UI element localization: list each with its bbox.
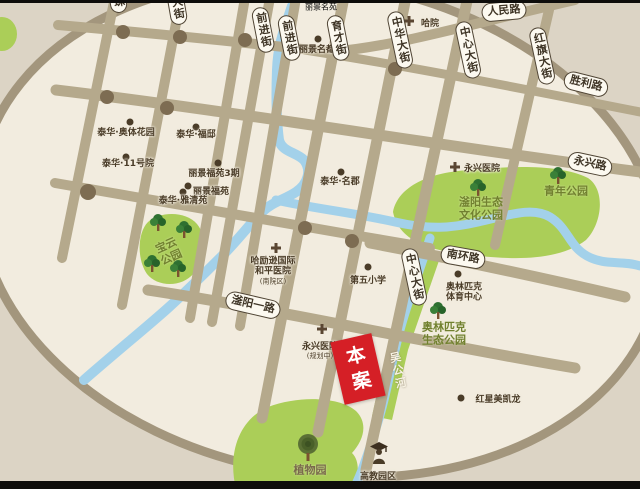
poi-lijing-fuyuan-phase3: 丽景福苑3期 xyxy=(188,169,239,179)
poi-lijing-mingdu: 丽景名都 xyxy=(299,45,335,55)
poi-harrison-intl-peace-hospital: 哈励逊国际和平医院(南院区) xyxy=(250,257,295,286)
tree-icon-baoyun-2 xyxy=(175,219,193,243)
poi-dot-hongxing-icon xyxy=(458,395,465,402)
poi-dot-taihua-mingjun-icon xyxy=(338,169,345,176)
poi-dot-no5-school-icon xyxy=(365,264,372,271)
poi-dot-taihua-aoti-icon xyxy=(127,119,134,126)
graduate-icon-gaojiao xyxy=(369,441,389,469)
tree-icon-baoyun-1 xyxy=(149,212,167,236)
top-black-band xyxy=(0,0,640,3)
poi-taihua-mingjun: 泰华·名郡 xyxy=(320,177,359,187)
poi-dot-taihua-yaqing-icon xyxy=(180,189,187,196)
hospital-cross-yongxing-planned-icon xyxy=(316,321,328,340)
poi-taihua-yaqingyuan: 泰华·雅清苑 xyxy=(159,196,207,206)
park-blob-west-edge xyxy=(0,17,17,51)
park-qingnian-park: 青年公园 xyxy=(544,186,588,199)
poi-no5-primary-school: 第五小学 xyxy=(350,276,386,286)
bottom-black-band xyxy=(0,481,640,489)
park-olympic-eco-park: 奥林匹克生态公园 xyxy=(422,321,466,346)
poi-dot-lijing-mingdu-icon xyxy=(315,36,322,43)
park-botanical-garden: 植物园 xyxy=(294,465,327,478)
poi-taihua-aoti-garden: 泰华·奥体花园 xyxy=(97,128,154,138)
tree-icon-botanical xyxy=(295,433,321,465)
hospital-cross-yongxing-north-icon xyxy=(449,159,461,178)
poi-olympic-sports-center: 奥林匹克体育中心 xyxy=(446,283,482,304)
poi-taihua-no11-court: 泰华·11号院 xyxy=(102,159,154,169)
poi-ha-hospital: 哈院 xyxy=(421,19,439,29)
poi-yongxing-hospital-north: 永兴医院 xyxy=(464,164,500,174)
poi-dot-lijing-fuyuan3-icon xyxy=(215,160,222,167)
park-fuyang-eco-culture-park: 滏阳生态文化公园 xyxy=(459,196,503,221)
street-pill-renmin-road: 人民路 xyxy=(481,0,527,22)
poi-dot-olympic-center-icon xyxy=(455,271,462,278)
poi-taihua-fudi: 泰华·福邸 xyxy=(176,130,215,140)
location-map: 本案 const data = JSON.parse(document.getE… xyxy=(0,0,640,489)
poi-hongxing-meikailong: 红星美凯龙 xyxy=(475,395,520,405)
poi-lijing-mingyuan: 丽景名苑 xyxy=(305,2,337,11)
